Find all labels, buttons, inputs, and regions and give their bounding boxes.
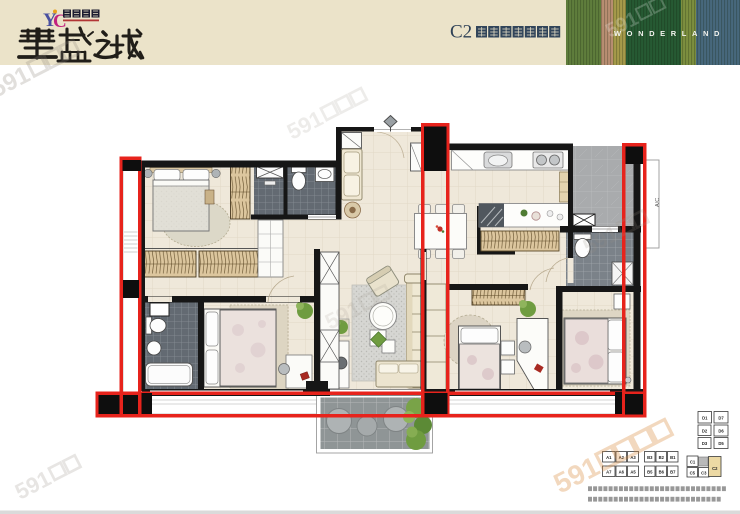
svg-text:B7: B7 bbox=[670, 469, 676, 474]
svg-text:B1: B1 bbox=[670, 455, 676, 460]
svg-text:A6: A6 bbox=[619, 469, 625, 474]
svg-text:C2: C2 bbox=[450, 22, 472, 43]
svg-text:C3: C3 bbox=[701, 470, 707, 475]
svg-text:A/C: A/C bbox=[655, 198, 661, 207]
svg-text:B2: B2 bbox=[659, 455, 665, 460]
svg-text:A1: A1 bbox=[606, 455, 612, 460]
svg-text:B5: B5 bbox=[647, 469, 653, 474]
svg-text:C5: C5 bbox=[690, 470, 696, 475]
svg-text:C2: C2 bbox=[712, 466, 718, 471]
svg-text:A5: A5 bbox=[630, 469, 636, 474]
svg-text:B3: B3 bbox=[647, 455, 653, 460]
svg-text:D1: D1 bbox=[702, 415, 708, 420]
svg-text:D3: D3 bbox=[702, 441, 708, 446]
svg-text:B6: B6 bbox=[659, 469, 665, 474]
svg-text:A7: A7 bbox=[606, 469, 612, 474]
svg-text:D7: D7 bbox=[718, 415, 724, 420]
svg-text:D5: D5 bbox=[718, 441, 724, 446]
svg-text:D6: D6 bbox=[718, 429, 724, 434]
svg-text:D2: D2 bbox=[702, 428, 708, 433]
svg-text:C1: C1 bbox=[690, 459, 696, 464]
